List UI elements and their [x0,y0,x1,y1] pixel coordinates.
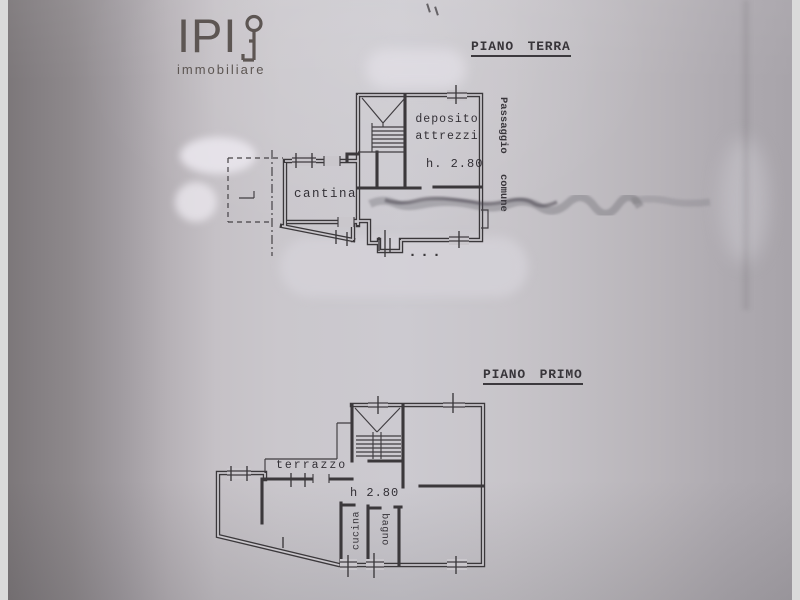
height-note-ground: h. 2.80 [426,157,483,171]
room-label-cantina: cantina [294,187,357,201]
room-label-bagno: bagno [379,498,390,562]
logo-subtitle: immobiliare [177,62,269,77]
scanned-floorplan-photo: IPI immobiliare PIANO TERRA [0,0,800,600]
dots-mark: ... [408,244,444,261]
logo-brand-text: IPI [177,12,237,60]
room-label-cucina: cucina [352,496,363,566]
floorplan-ground [220,76,532,268]
screen-edge [0,0,8,600]
agency-logo: IPI immobiliare [177,12,269,77]
room-label-terrazzo: terrazzo [276,459,347,472]
title-piano-terra: PIANO TERRA [471,39,571,57]
paper-crease [741,0,751,310]
room-label-deposito-attrezzi: deposito attrezzi [415,111,479,145]
title-piano-primo: PIANO PRIMO [483,367,583,385]
screen-edge [792,0,800,600]
key-icon [239,14,269,66]
pencil-smudge [360,185,730,227]
whiteout-artifact [175,182,217,222]
